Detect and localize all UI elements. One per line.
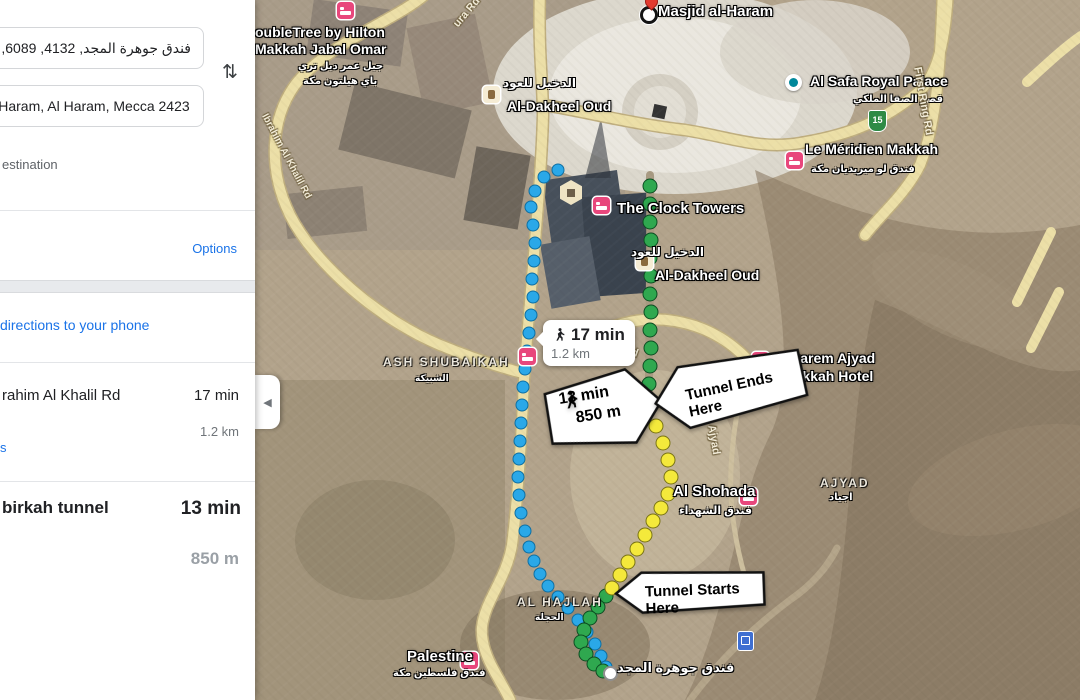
le-meridien-hotel-icon[interactable] <box>786 152 803 169</box>
tunnel-starts-callout: Tunnel Starts Here <box>614 567 765 614</box>
doubletree-label-line1[interactable]: oubleTree by Hilton <box>255 24 385 40</box>
route-name: birkah tunnel <box>2 498 109 518</box>
ajyad-district-label: AJYAD <box>820 476 870 490</box>
sidebar-collapse-button[interactable]: ◀ <box>255 375 280 429</box>
blue-route-dot <box>526 273 539 286</box>
al-dakheel-2-arabic: الدخيل للعود <box>631 245 704 259</box>
doubletree-label-line2[interactable]: Makkah Jabal Omar <box>255 41 387 57</box>
route-duration: 17 min <box>194 387 239 404</box>
al-dakheel-2-label[interactable]: Al-Dakheel Oud <box>655 267 759 283</box>
blue-route-dot <box>523 541 536 554</box>
tunnel-starts-text: Tunnel Starts Here <box>645 579 766 617</box>
blue-route-dot <box>517 381 530 394</box>
yellow-route-dot <box>630 542 645 557</box>
green-route-dot <box>643 287 658 302</box>
al-hajlah-label: AL HAJLAH <box>517 595 603 609</box>
yellow-route-dot <box>638 528 653 543</box>
palestine-arabic: فندق فلسطين مكة <box>393 668 486 679</box>
blue-route-dot <box>528 555 541 568</box>
blue-route-dot <box>552 164 565 177</box>
al-shohada-label[interactable]: Al Shohada <box>673 483 756 500</box>
masjid-al-haram-label[interactable]: Masjid al-Haram <box>658 3 773 20</box>
blue-route-dot <box>512 471 525 484</box>
blue-route-dot <box>525 309 538 322</box>
blue-route-dot <box>527 219 540 232</box>
clock-towers-label[interactable]: The Clock Towers <box>617 200 744 217</box>
doubletree-arabic-line2: باي هيلتون مكة <box>303 76 377 87</box>
blue-route-dot <box>528 255 541 268</box>
transit-badge-icon <box>737 631 754 651</box>
al-hajlah-arabic: الحجلة <box>535 612 564 623</box>
swap-origin-destination-icon[interactable]: ⇅ <box>222 61 238 84</box>
directions-sidebar: ⇅ estination Options directions to your … <box>0 0 255 700</box>
green-route-dot <box>644 305 659 320</box>
blue-route-dot <box>513 453 526 466</box>
ash-shubaikah-arabic: الشبيكة <box>415 373 449 384</box>
blue-route-dot <box>513 489 526 502</box>
blue-route-dot <box>516 399 529 412</box>
al-dakheel-top-arabic: الدخيل للعود <box>503 76 576 90</box>
divider <box>0 210 255 211</box>
route-option-birkah-tunnel[interactable]: birkah tunnel 13 min 850 m <box>0 498 255 588</box>
blue-route-dot <box>529 185 542 198</box>
blue-route-dot <box>527 291 540 304</box>
le-meridien-label[interactable]: Le Méridien Makkah <box>805 141 938 157</box>
walking-icon <box>551 326 567 344</box>
roadside-hotel-icon[interactable] <box>519 348 536 365</box>
doubletree-arabic-line1: جبل عمر دبل تري <box>298 61 383 72</box>
route-name: rahim Al Khalil Rd <box>2 387 120 404</box>
route-option-ibrahim-al-khalil[interactable]: rahim Al Khalil Rd 17 min 1.2 km s <box>0 387 255 480</box>
route-distance: 1.2 km <box>200 424 239 439</box>
blue-route-dot <box>534 568 547 581</box>
blue-route-dot <box>519 525 532 538</box>
ajyad-district-arabic: اجياد <box>829 492 853 503</box>
origin-marker <box>603 666 618 681</box>
blue-route-dot <box>514 435 527 448</box>
options-link[interactable]: Options <box>192 241 237 256</box>
green-route-dot <box>643 323 658 338</box>
green-route-dot <box>644 341 659 356</box>
walk-duration: 17 min <box>571 325 625 345</box>
yellow-route-dot <box>646 514 661 529</box>
le-meridien-arabic: فندق لو ميريديان مكة <box>811 164 915 175</box>
route-distance: 850 m <box>191 549 239 569</box>
palestine-label[interactable]: Palestine <box>407 648 473 665</box>
yellow-route-dot <box>661 453 676 468</box>
divider <box>0 362 255 363</box>
destination-input[interactable] <box>0 85 204 127</box>
route-details-link[interactable]: s <box>0 440 7 455</box>
blue-route-dot <box>523 327 536 340</box>
section-separator <box>0 280 255 293</box>
blue-route-dot <box>542 580 555 593</box>
walking-icon <box>557 386 583 415</box>
blue-route-dot <box>525 201 538 214</box>
al-safa-label[interactable]: Al Safa Royal Palace <box>810 73 948 89</box>
walking-time-badge[interactable]: 17 min 1.2 km <box>543 320 635 366</box>
clock-towers-hotel-icon[interactable] <box>593 197 610 214</box>
ash-shubaikah-label: ASH SHUBAIKAH <box>383 355 510 369</box>
satellite-map[interactable]: 15Masjid al-HaramoubleTree by HiltonMakk… <box>255 0 1080 700</box>
divider <box>0 481 255 482</box>
jawharat-al-majd-arabic: فندق جوهرة المجد <box>617 660 734 676</box>
route-duration: 13 min <box>181 498 241 520</box>
blue-route-dot <box>529 237 542 250</box>
green-route-dot <box>643 179 658 194</box>
walk-distance: 1.2 km <box>551 346 625 361</box>
doubletree-hotel-icon[interactable] <box>337 2 354 19</box>
blue-route-dot <box>515 417 528 430</box>
send-directions-to-phone-link[interactable]: directions to your phone <box>0 317 149 333</box>
al-dakheel-top-label[interactable]: Al-Dakheel Oud <box>507 98 611 114</box>
blue-route-dot <box>515 507 528 520</box>
blue-route-dot <box>538 171 551 184</box>
al-safa-place-icon[interactable] <box>785 74 802 91</box>
origin-input[interactable] <box>0 27 204 69</box>
maps-app-window: ⇅ estination Options directions to your … <box>0 0 1080 700</box>
al-dakheel-top-shop-icon[interactable] <box>483 86 500 103</box>
chevron-left-icon: ◀ <box>263 396 271 409</box>
route-15-shield-icon: 15 <box>868 110 887 132</box>
add-destination-label[interactable]: estination <box>2 157 58 172</box>
al-shohada-arabic: فندق الشهداء <box>679 504 752 517</box>
